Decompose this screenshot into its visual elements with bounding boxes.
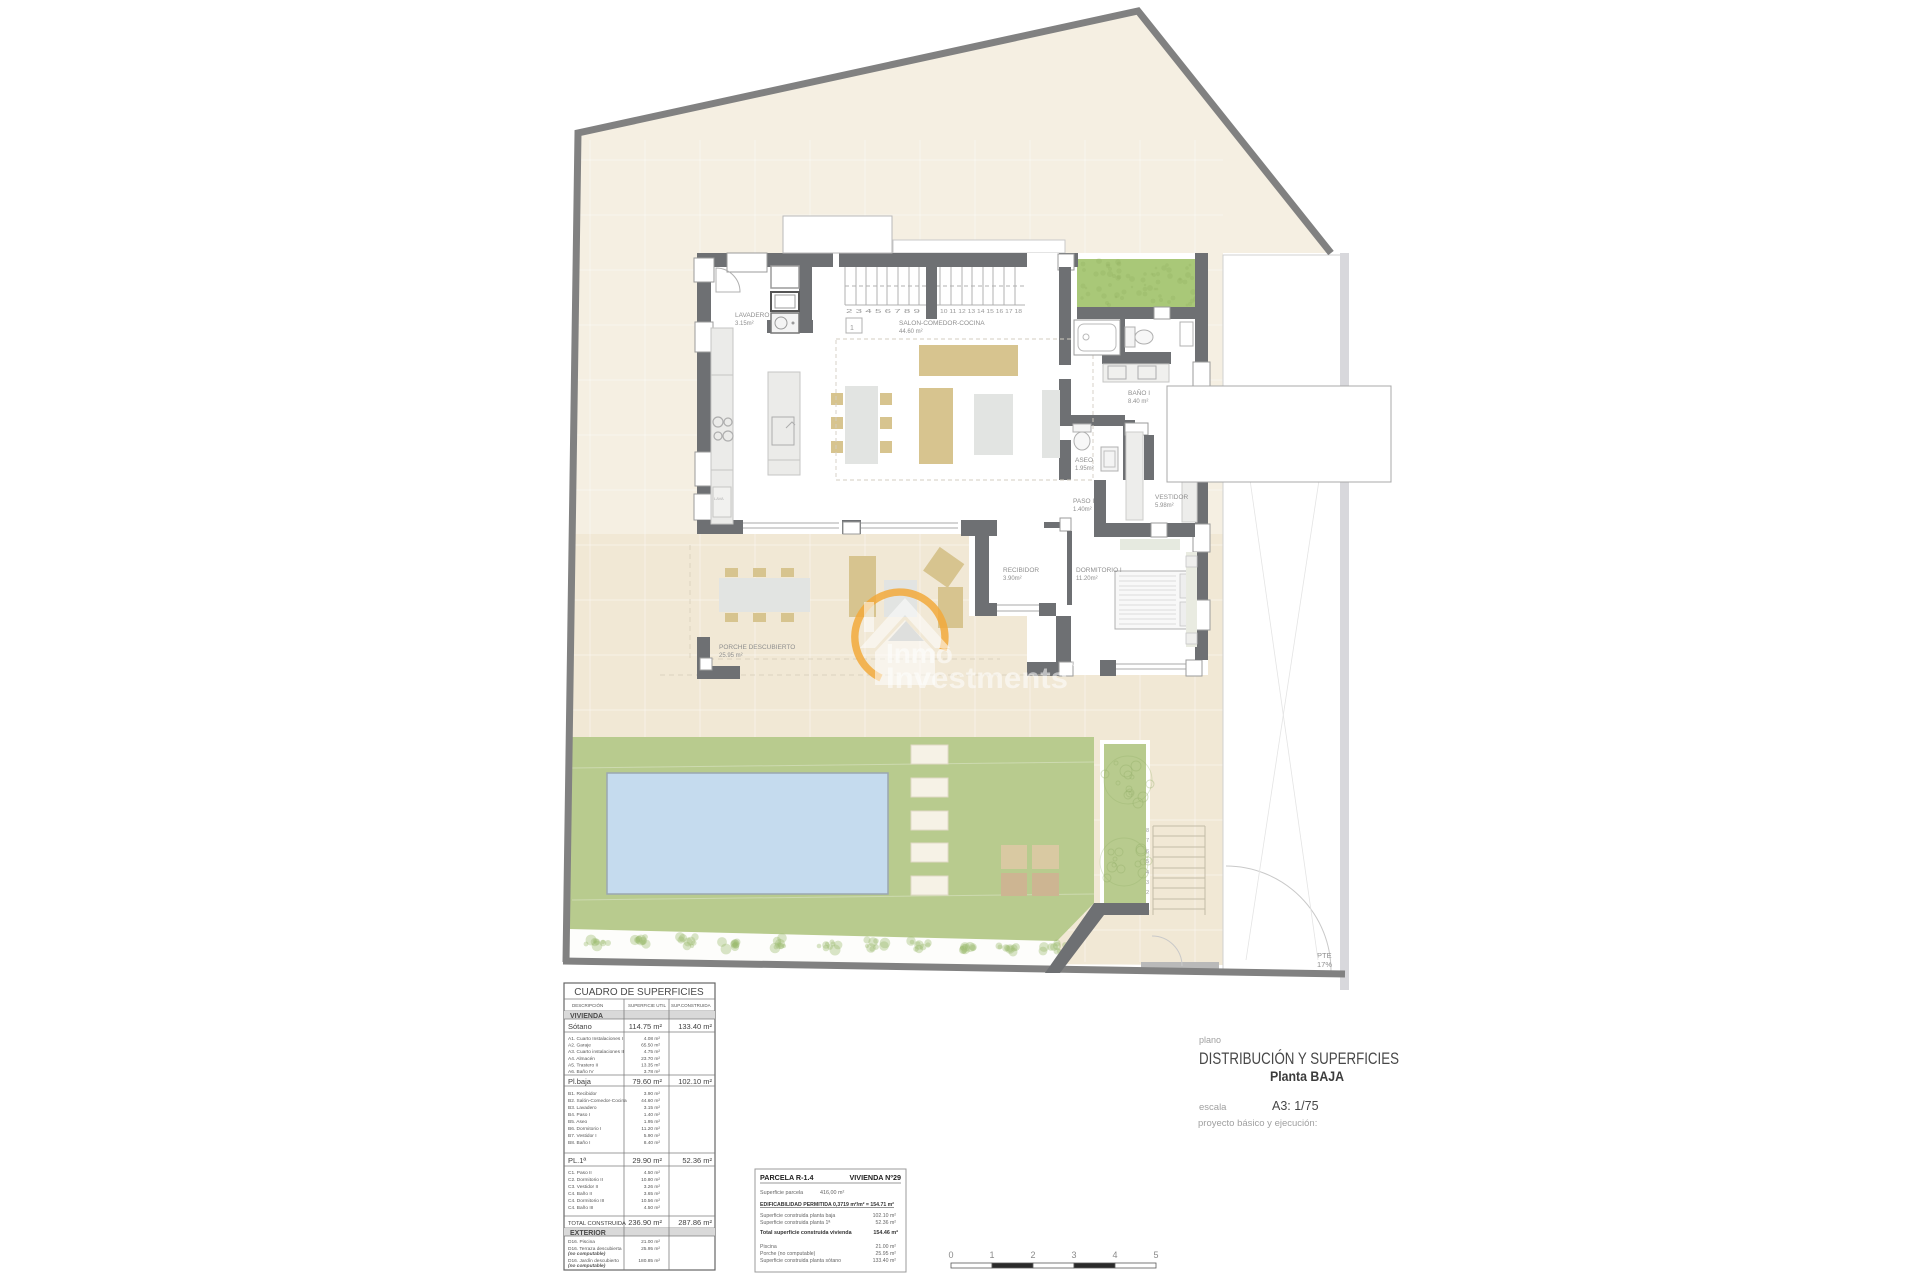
svg-text:11.20m²: 11.20m² bbox=[1076, 576, 1098, 582]
svg-text:Superficie construida planta 1: Superficie construida planta 1ª bbox=[760, 1220, 830, 1226]
svg-text:LAVA: LAVA bbox=[714, 496, 724, 501]
svg-text:3.78 m²: 3.78 m² bbox=[644, 1069, 661, 1075]
svg-text:5: 5 bbox=[1153, 1250, 1158, 1260]
svg-text:3.26 m²: 3.26 m² bbox=[644, 1184, 661, 1190]
svg-text:C3. Vestidor II: C3. Vestidor II bbox=[568, 1184, 598, 1190]
svg-text:133.40 m²: 133.40 m² bbox=[678, 1022, 712, 1031]
svg-text:3.65 m²: 3.65 m² bbox=[644, 1191, 661, 1197]
svg-text:114.75 m²: 114.75 m² bbox=[629, 1022, 663, 1031]
svg-text:SUP.CONSTRUIDA: SUP.CONSTRUIDA bbox=[671, 1003, 711, 1008]
svg-text:5.98m²: 5.98m² bbox=[1155, 503, 1174, 509]
svg-text:4.50 m²: 4.50 m² bbox=[644, 1205, 661, 1211]
svg-text:25.95 m²: 25.95 m² bbox=[876, 1251, 897, 1257]
svg-text:21.00 m²: 21.00 m² bbox=[641, 1239, 660, 1245]
svg-text:A3: 1/75: A3: 1/75 bbox=[1272, 1099, 1319, 1113]
svg-text:3.90m²: 3.90m² bbox=[1003, 576, 1022, 582]
svg-text:102.10 m²: 102.10 m² bbox=[873, 1213, 897, 1219]
svg-text:Planta BAJA: Planta BAJA bbox=[1270, 1069, 1344, 1084]
svg-text:DISTRIBUCIÓN Y SUPERFICIES: DISTRIBUCIÓN Y SUPERFICIES bbox=[1199, 1049, 1399, 1068]
svg-text:79.60 m²: 79.60 m² bbox=[632, 1077, 662, 1086]
svg-text:29.90 m²: 29.90 m² bbox=[632, 1156, 662, 1165]
svg-text:65.50 m²: 65.50 m² bbox=[641, 1043, 660, 1049]
svg-text:SUPERFICIE UTIL: SUPERFICIE UTIL bbox=[628, 1003, 667, 1008]
svg-text:D16. Piscina: D16. Piscina bbox=[568, 1239, 595, 1245]
svg-text:CUADRO DE SUPERFICIES: CUADRO DE SUPERFICIES bbox=[574, 987, 704, 998]
svg-text:11.20 m²: 11.20 m² bbox=[641, 1126, 660, 1132]
svg-text:A4. Almacén: A4. Almacén bbox=[568, 1056, 595, 1062]
svg-text:SALON-COMEDOR-COCINA: SALON-COMEDOR-COCINA bbox=[899, 320, 985, 327]
svg-text:10.56 m²: 10.56 m² bbox=[641, 1198, 660, 1204]
svg-text:2: 2 bbox=[1146, 890, 1149, 896]
svg-text:4: 4 bbox=[1112, 1250, 1117, 1260]
svg-text:4: 4 bbox=[1146, 870, 1149, 876]
svg-text:C2. Dormitorio II: C2. Dormitorio II bbox=[568, 1177, 603, 1183]
svg-text:DESCRIPCIÓN: DESCRIPCIÓN bbox=[572, 1002, 603, 1008]
svg-text:A3. Cuarto instalaciones II: A3. Cuarto instalaciones II bbox=[568, 1049, 624, 1055]
svg-text:RECIBIDOR: RECIBIDOR bbox=[1003, 567, 1039, 574]
svg-text:1: 1 bbox=[850, 325, 854, 332]
svg-text:A2. Garaje: A2. Garaje bbox=[568, 1043, 591, 1049]
svg-text:13.35 m²: 13.35 m² bbox=[641, 1062, 660, 1068]
svg-text:PORCHE DESCUBIERTO: PORCHE DESCUBIERTO bbox=[719, 644, 795, 651]
svg-text:B1. Recibidor: B1. Recibidor bbox=[568, 1091, 597, 1097]
svg-text:B2. Salón-Comedor-Cocina: B2. Salón-Comedor-Cocina bbox=[568, 1098, 627, 1104]
svg-text:236.90 m²: 236.90 m² bbox=[628, 1218, 662, 1227]
svg-text:2: 2 bbox=[1030, 1250, 1035, 1260]
svg-text:3: 3 bbox=[1146, 880, 1149, 886]
svg-text:1.40m²: 1.40m² bbox=[1073, 507, 1092, 513]
svg-text:ASEO: ASEO bbox=[1075, 457, 1093, 464]
svg-text:Superficie parcela: Superficie parcela bbox=[760, 1190, 803, 1196]
svg-text:escala: escala bbox=[1199, 1102, 1227, 1113]
svg-text:2 3 4 5 6 7 8 9: 2 3 4 5 6 7 8 9 bbox=[846, 309, 920, 315]
svg-text:Investments: Investments bbox=[886, 662, 1068, 695]
svg-text:8.40 m²: 8.40 m² bbox=[1128, 399, 1148, 405]
svg-text:PARCELA R-1.4: PARCELA R-1.4 bbox=[760, 1173, 814, 1182]
svg-text:Porche (no computable): Porche (no computable) bbox=[760, 1251, 816, 1257]
svg-text:3.15 m²: 3.15 m² bbox=[644, 1105, 661, 1111]
svg-text:0: 0 bbox=[948, 1250, 953, 1260]
svg-text:TOTAL CONSTRUIDA: TOTAL CONSTRUIDA bbox=[568, 1221, 626, 1227]
svg-text:Pl.baja: Pl.baja bbox=[568, 1077, 592, 1086]
svg-text:C4. Baño II: C4. Baño II bbox=[568, 1191, 592, 1197]
svg-text:1.40 m²: 1.40 m² bbox=[644, 1112, 661, 1118]
svg-text:52.36 m²: 52.36 m² bbox=[876, 1220, 897, 1226]
svg-text:A6. Baño IV: A6. Baño IV bbox=[568, 1069, 594, 1075]
svg-text:Superficie construida planta s: Superficie construida planta sótano bbox=[760, 1258, 841, 1264]
svg-text:BAÑO I: BAÑO I bbox=[1128, 388, 1150, 397]
svg-text:B6. Dormitorio I: B6. Dormitorio I bbox=[568, 1126, 601, 1132]
svg-text:8: 8 bbox=[1146, 828, 1149, 834]
svg-text:B7. Vestidor I: B7. Vestidor I bbox=[568, 1133, 597, 1139]
svg-text:Superficie construida planta b: Superficie construida planta baja bbox=[760, 1213, 835, 1219]
svg-text:3.90 m²: 3.90 m² bbox=[644, 1091, 661, 1097]
svg-text:25.95 m²: 25.95 m² bbox=[719, 653, 743, 659]
svg-text:287.86 m²: 287.86 m² bbox=[678, 1218, 712, 1227]
svg-text:5: 5 bbox=[1146, 859, 1149, 865]
svg-text:133.40 m²: 133.40 m² bbox=[873, 1258, 897, 1264]
svg-text:DORMITORIO I: DORMITORIO I bbox=[1076, 567, 1122, 574]
svg-text:1.95m²: 1.95m² bbox=[1075, 466, 1094, 472]
svg-text:LAVADERO: LAVADERO bbox=[735, 312, 769, 319]
svg-text:(no computable): (no computable) bbox=[568, 1263, 606, 1269]
svg-text:10.80 m²: 10.80 m² bbox=[641, 1177, 660, 1183]
svg-text:Piscina: Piscina bbox=[760, 1244, 777, 1250]
svg-text:PL.1ª: PL.1ª bbox=[568, 1156, 586, 1165]
svg-text:EDIFICABILIDAD PERMITIDA 0,37: EDIFICABILIDAD PERMITIDA 0,3719 m²/m² = … bbox=[760, 1202, 894, 1208]
svg-text:B4. Paso I: B4. Paso I bbox=[568, 1112, 590, 1118]
svg-text:5.90 m²: 5.90 m² bbox=[644, 1133, 661, 1139]
svg-text:VESTIDOR: VESTIDOR bbox=[1155, 494, 1189, 501]
svg-text:1.95 m²: 1.95 m² bbox=[644, 1119, 661, 1125]
svg-text:44.60 m²: 44.60 m² bbox=[899, 329, 923, 335]
svg-text:VIVIENDA Nº29: VIVIENDA Nº29 bbox=[850, 1173, 902, 1182]
svg-text:A5. Trastero II: A5. Trastero II bbox=[568, 1062, 598, 1068]
svg-text:B8. Baño I: B8. Baño I bbox=[568, 1140, 590, 1146]
svg-text:3: 3 bbox=[1071, 1250, 1076, 1260]
svg-text:44.60 m²: 44.60 m² bbox=[641, 1098, 660, 1104]
svg-text:Sótano: Sótano bbox=[568, 1022, 592, 1031]
svg-text:416,00 m²: 416,00 m² bbox=[820, 1190, 844, 1196]
svg-text:PTE: PTE bbox=[1317, 951, 1332, 960]
svg-text:Total superficie construida vi: Total superficie construida vivienda bbox=[760, 1230, 853, 1236]
svg-text:10 11 12 13 14 15 16 17 18: 10 11 12 13 14 15 16 17 18 bbox=[940, 309, 1022, 315]
svg-text:C4. Baño III: C4. Baño III bbox=[568, 1205, 593, 1211]
svg-text:4.08 m²: 4.08 m² bbox=[644, 1036, 661, 1042]
svg-text:17%: 17% bbox=[1317, 960, 1332, 969]
svg-text:proyecto básico y ejecución:: proyecto básico y ejecución: bbox=[1198, 1118, 1317, 1129]
svg-text:plano: plano bbox=[1199, 1035, 1221, 1045]
svg-text:4.50 m²: 4.50 m² bbox=[644, 1170, 661, 1176]
svg-text:3.15m²: 3.15m² bbox=[735, 321, 754, 327]
svg-text:180.85 m²: 180.85 m² bbox=[638, 1258, 660, 1264]
svg-text:52.36 m²: 52.36 m² bbox=[682, 1156, 712, 1165]
svg-text:6: 6 bbox=[1146, 849, 1149, 855]
svg-text:®: ® bbox=[1072, 658, 1080, 670]
svg-text:B5. Aseo: B5. Aseo bbox=[568, 1119, 588, 1125]
svg-text:4.75 m²: 4.75 m² bbox=[644, 1049, 661, 1055]
svg-text:23.70 m²: 23.70 m² bbox=[641, 1056, 660, 1062]
svg-text:102.10 m²: 102.10 m² bbox=[678, 1077, 712, 1086]
svg-text:21.00 m²: 21.00 m² bbox=[876, 1244, 897, 1250]
svg-text:154.46 m²: 154.46 m² bbox=[873, 1230, 898, 1236]
svg-text:7: 7 bbox=[1146, 838, 1149, 844]
svg-text:25.95 m²: 25.95 m² bbox=[641, 1246, 660, 1252]
svg-text:1: 1 bbox=[989, 1250, 994, 1260]
svg-text:PASO I: PASO I bbox=[1073, 498, 1094, 505]
svg-text:C1. Paso II: C1. Paso II bbox=[568, 1170, 592, 1176]
svg-text:C4. Dormitorio III: C4. Dormitorio III bbox=[568, 1198, 604, 1204]
svg-text:(no computable): (no computable) bbox=[568, 1251, 606, 1257]
svg-text:8.40 m²: 8.40 m² bbox=[644, 1140, 661, 1146]
svg-text:B3. Lavadero: B3. Lavadero bbox=[568, 1105, 597, 1111]
svg-text:A1. Cuarto Instalaciones I: A1. Cuarto Instalaciones I bbox=[568, 1036, 623, 1042]
